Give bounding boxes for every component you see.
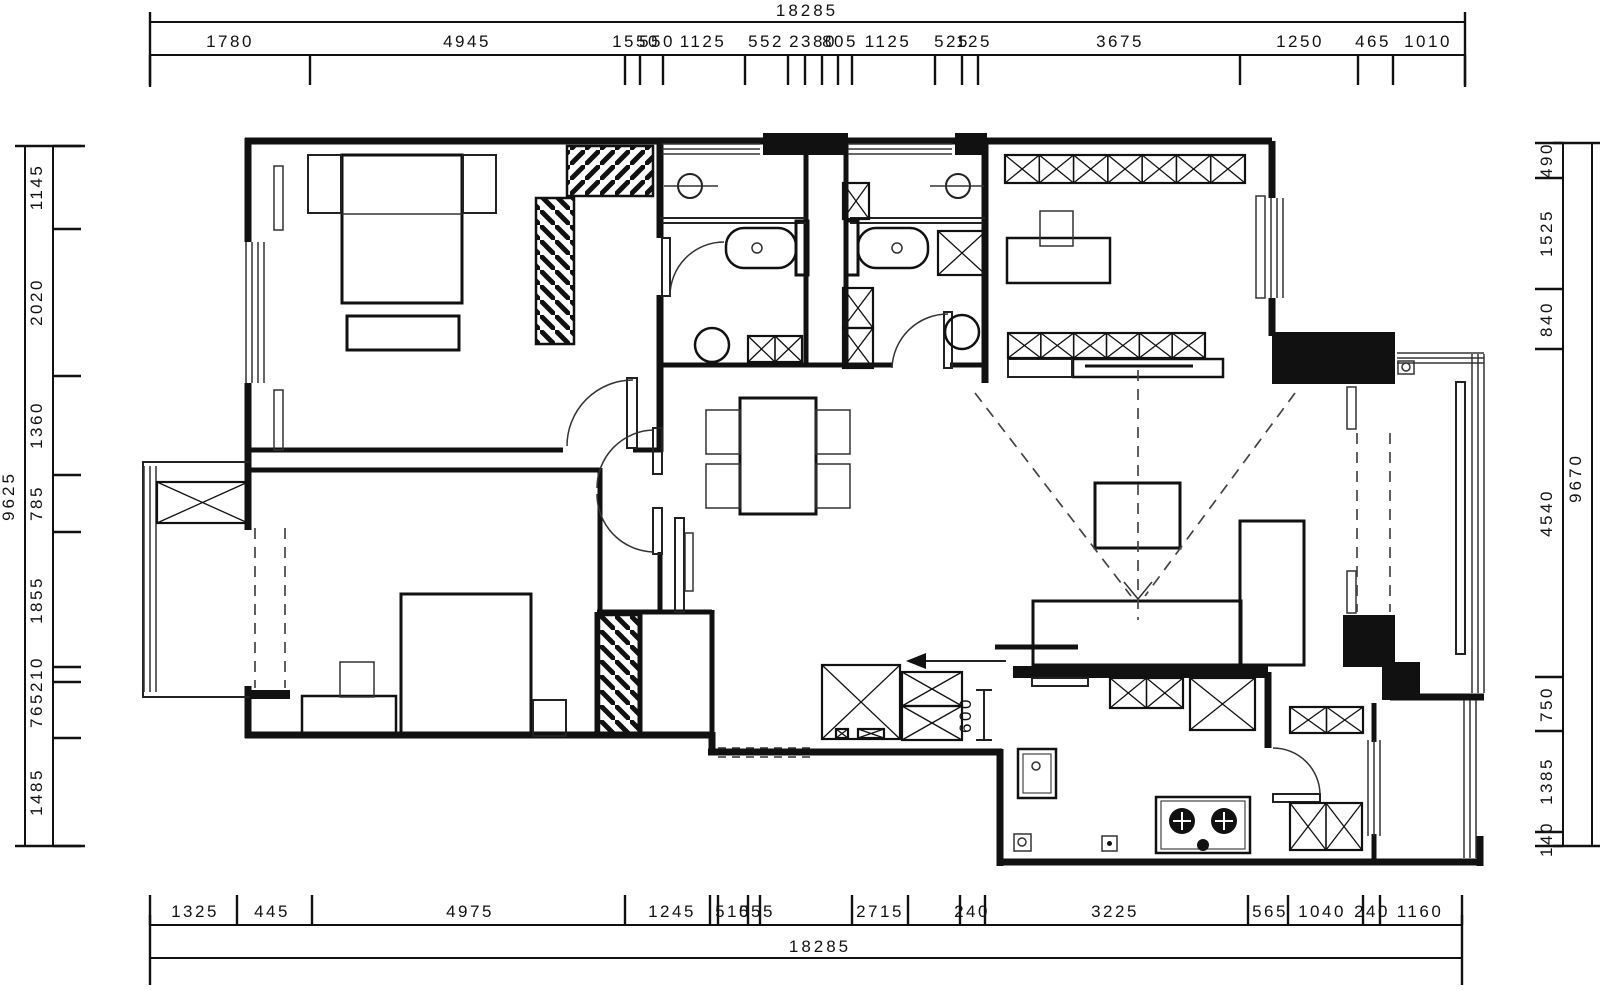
study-chair [1040, 211, 1073, 246]
balcony-jamb-top [1347, 387, 1356, 429]
bath1-toilet-flush [752, 243, 762, 253]
dimension-label: 465 [1355, 32, 1391, 51]
xbox-marks [858, 729, 884, 738]
kitchen-drain [1014, 834, 1031, 851]
dimension-label: 1325 [171, 902, 219, 921]
floor-plan-page: 600 178049451550550112555223808051125525… [0, 0, 1600, 985]
xbox-marks [1110, 678, 1183, 708]
dimension-label: 1125 [865, 32, 912, 51]
dimension-total: 18285 [776, 1, 838, 20]
bath1-basin [695, 328, 729, 362]
master-nightstand-right [463, 155, 496, 213]
xbox-marks [1005, 155, 1245, 183]
dimension-label: 240 [1354, 902, 1390, 921]
kitchen-sink-bowl [1023, 754, 1051, 793]
dimension-label: 565 [1252, 902, 1288, 921]
xbox-marks [902, 706, 962, 740]
dimension-label: 2020 [27, 278, 46, 326]
dimension-label: 1780 [206, 32, 254, 51]
radiator-hall [685, 533, 693, 591]
bath2-toilet-flush [892, 243, 902, 253]
dimension-label: 490 [1537, 142, 1556, 178]
balcony-opening [1357, 433, 1390, 612]
dimension-label: 210 [27, 656, 46, 692]
wall-bath-dividers [806, 141, 846, 365]
dimension-label: 1360 [27, 401, 46, 449]
dimension-total: 9625 [0, 471, 18, 521]
window-study-right [1271, 198, 1283, 298]
xbox-marks [748, 336, 802, 362]
kitchen-door-arc [1273, 748, 1320, 794]
sofa-side-ledge [1032, 678, 1088, 686]
dining-chair-1 [706, 410, 740, 454]
wardrobe-closet [599, 615, 639, 735]
window-bath2-top [848, 144, 952, 154]
xbox-marks [157, 482, 248, 523]
bath2-door-arc [892, 314, 948, 368]
dimension-label: 2715 [856, 902, 904, 921]
double-door-arc-lower [597, 494, 653, 552]
dimension-label: 1385 [1537, 757, 1556, 805]
master-door-arc [567, 380, 633, 446]
bay-removed-wall [255, 528, 285, 688]
dimension-total: 18285 [789, 937, 851, 956]
radiator-master-2 [274, 390, 283, 450]
dimension-label: 1145 [27, 164, 46, 211]
bath2-toilet [858, 228, 928, 268]
xbox-marks [902, 672, 962, 706]
study-cabinet [1008, 359, 1072, 377]
floor-plan-canvas: 600 178049451550550112555223808051125525… [0, 0, 1600, 985]
window-kitchen-right [1368, 740, 1380, 836]
doors [567, 238, 1320, 802]
wall-mass-living-ne [1272, 332, 1395, 384]
radiator-master-1 [274, 166, 283, 230]
tv-console [1073, 359, 1223, 377]
master-door-leaf [627, 378, 637, 448]
tv-sightline-left [975, 393, 1131, 596]
furniture [302, 155, 1414, 853]
balcony-drain-circle [1402, 363, 1410, 371]
sofa-chaise [1240, 521, 1304, 665]
window-bath1-top [662, 144, 760, 154]
wall-mass-top-mid [763, 133, 848, 155]
dimension-label: 125 [956, 32, 992, 51]
dining-chair-2 [706, 464, 740, 508]
dimension-label: 445 [254, 902, 290, 921]
dimension-label: 1485 [27, 768, 46, 816]
bed2-desk [302, 696, 396, 737]
dining-chair-3 [816, 410, 850, 454]
wall-bath-counter-lines [660, 218, 985, 223]
window-se [1464, 700, 1476, 858]
xbox-marks [938, 231, 986, 275]
dimension-label: 4945 [443, 32, 491, 51]
dimension-label: 1125 [680, 32, 727, 51]
dimension-label: 240 [954, 902, 990, 921]
interior-dim-line [976, 690, 992, 740]
kitchen-outlet-dot [1107, 841, 1112, 846]
dimension-label: 1855 [27, 576, 46, 624]
bath2-basin [945, 315, 979, 349]
sofa-main [1033, 601, 1241, 665]
window-bay-left [144, 466, 156, 692]
outer-wall-bottom [245, 732, 1480, 866]
bed2-nightstand [533, 700, 566, 736]
study-desk [1007, 238, 1110, 283]
dimension-label: 552 [748, 32, 784, 51]
stove-knob [1197, 839, 1209, 851]
dimension-label: 550 [639, 32, 675, 51]
dimension-label: 4975 [446, 902, 494, 921]
kitchen-drain-circle [1018, 838, 1026, 846]
tv-sightline-right [1145, 393, 1295, 596]
interior-dim-label: 600 [956, 697, 975, 733]
wardrobe-master-top [567, 146, 653, 196]
xbox-marks [1190, 678, 1255, 730]
wall-infill-bay [246, 690, 290, 699]
dimension-label: 765 [27, 692, 46, 728]
dimension-label: 1525 [1537, 209, 1556, 257]
dimension-label: 1160 [1397, 902, 1444, 921]
entry-annotations: 600 [906, 647, 1078, 740]
double-door-leaf-lower [653, 508, 662, 554]
bath1-door-arc [670, 242, 724, 296]
dimension-label: 1250 [1276, 32, 1324, 51]
dimension-label: 840 [1537, 301, 1556, 337]
kitchen-faucet [1032, 762, 1040, 770]
dimension-label: 3225 [1091, 902, 1139, 921]
master-bed [342, 155, 462, 303]
dimension-label: 140 [1537, 821, 1556, 857]
wardrobe-master-side [536, 198, 574, 344]
radiator-study [1256, 196, 1265, 298]
dimension-label: 3675 [1096, 32, 1144, 51]
dimension-label: 1245 [648, 902, 696, 921]
bath1-door-leaf [662, 238, 670, 296]
xbox-marks [1290, 803, 1362, 850]
kitchen-door-leaf [1273, 794, 1320, 802]
wall-mass-living-south [1013, 666, 1268, 678]
dimension-total: 9670 [1566, 453, 1585, 503]
dimension-label: 555 [739, 902, 775, 921]
entrance-arrow-head [906, 653, 926, 669]
kitchen-sink [1018, 749, 1056, 798]
double-door-arc-upper [597, 430, 653, 488]
dimension-label: 785 [27, 485, 46, 521]
xbox-marks [1290, 707, 1363, 733]
cabinets [157, 155, 1363, 850]
closet-door-leaf [675, 518, 684, 612]
master-nightstand-left [308, 155, 341, 213]
dimension-label: 805 [822, 32, 858, 51]
wall-mass-balcony-pier [1382, 662, 1420, 700]
bath1-toilet [726, 228, 796, 268]
bay-outline [143, 462, 250, 697]
bed2 [401, 594, 531, 735]
dimension-label: 750 [1537, 686, 1556, 722]
master-bench [347, 316, 459, 350]
dimension-label: 1010 [1404, 32, 1452, 51]
window-balcony-right [1472, 354, 1484, 693]
dimension-label: 4540 [1537, 489, 1556, 537]
xbox-marks [1008, 333, 1205, 358]
stove-burner-grates [1173, 812, 1233, 830]
balcony-jamb-bottom [1347, 571, 1356, 613]
dining-chair-4 [816, 464, 850, 508]
window-master-left [246, 242, 264, 383]
balcony-bench [1456, 382, 1465, 654]
bed2-chair [340, 662, 374, 697]
dining-table [740, 398, 816, 514]
wall-mass-balcony-sw [1343, 615, 1395, 667]
wall-bed2-north-hall [248, 468, 660, 614]
dimension-label: 1040 [1298, 902, 1346, 921]
xbox-marks [836, 729, 848, 738]
wall-mass-top-mid2 [955, 133, 987, 155]
